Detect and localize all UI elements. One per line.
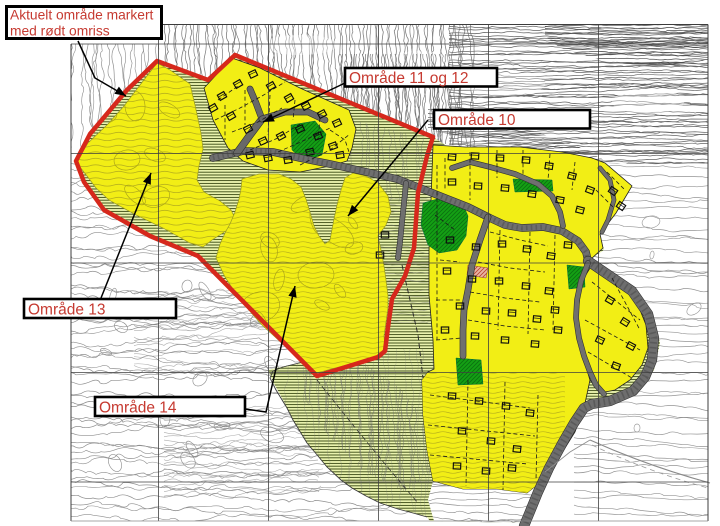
svg-text:Område 11 og 12: Område 11 og 12 xyxy=(349,70,468,87)
svg-text:Område 10: Område 10 xyxy=(438,112,516,129)
svg-text:Område 14: Område 14 xyxy=(99,400,177,417)
svg-text:Område 13: Område 13 xyxy=(28,302,106,319)
svg-text:Aktuelt område markert: Aktuelt område markert xyxy=(10,8,154,23)
svg-text:med rødt omriss: med rødt omriss xyxy=(10,24,110,39)
